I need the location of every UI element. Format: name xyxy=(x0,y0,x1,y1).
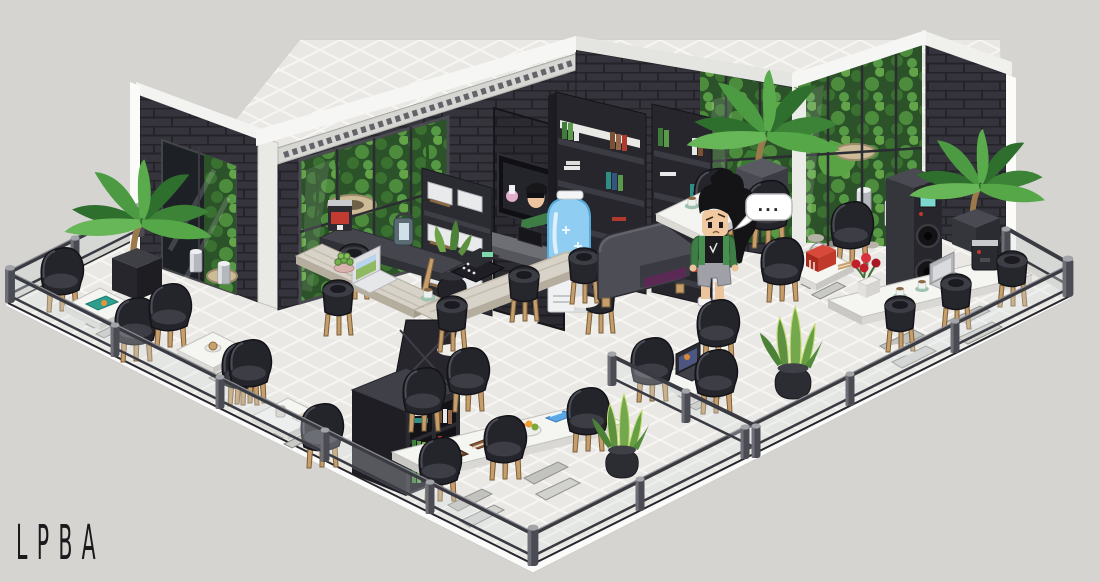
white-pillar xyxy=(258,136,278,309)
wall-trash-can[interactable] xyxy=(218,261,230,284)
chair[interactable] xyxy=(761,238,803,302)
speech-bubble-text: ... xyxy=(757,197,780,215)
chair[interactable] xyxy=(447,348,489,412)
coffee-cup[interactable] xyxy=(209,342,217,350)
isometric-room: ... xyxy=(0,0,1100,582)
stool[interactable] xyxy=(569,248,599,308)
chair[interactable] xyxy=(484,416,526,480)
wall-trash-can[interactable] xyxy=(190,249,202,272)
coffee-machine-black[interactable] xyxy=(972,240,998,270)
stool[interactable] xyxy=(437,296,467,356)
watermark-logo: LPBA xyxy=(16,514,105,571)
stool[interactable] xyxy=(509,266,539,326)
stool[interactable] xyxy=(323,280,353,340)
chair[interactable] xyxy=(403,368,445,432)
lantern[interactable] xyxy=(394,214,413,246)
chair[interactable] xyxy=(567,388,609,452)
chair[interactable] xyxy=(149,284,191,348)
room-canvas: ... xyxy=(0,0,1100,582)
coffee-machine-red[interactable] xyxy=(328,200,352,231)
